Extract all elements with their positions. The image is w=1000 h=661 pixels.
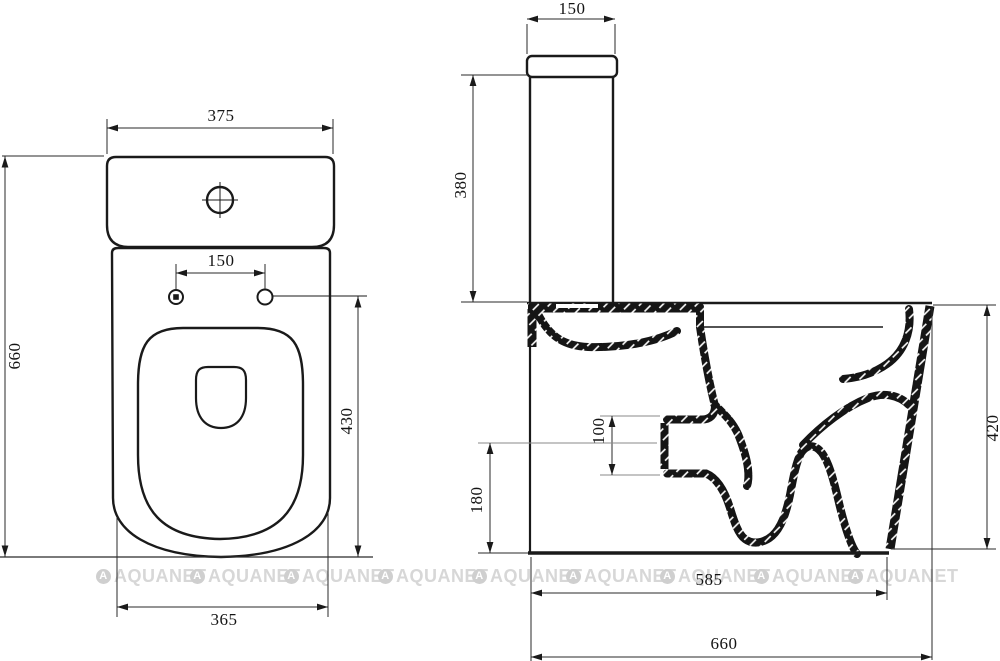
dim-label-side-total-depth: 660 (711, 634, 738, 654)
dim-label-front-base-width: 365 (211, 610, 238, 630)
rim-seat-slot (556, 304, 598, 308)
dim-label-side-outlet-height: 180 (467, 487, 487, 514)
dim-label-side-outlet-size: 100 (589, 418, 609, 445)
dim-label-front-top-width: 375 (208, 106, 235, 126)
front-seat-outline (138, 328, 303, 539)
side-tank-lid (527, 56, 617, 77)
technical-drawing-canvas: AAQUANET AAQUANET AAQUANET AAQUANET AAQU… (0, 0, 1000, 661)
front-view-drawing (107, 157, 367, 557)
drawing-linework (0, 0, 1000, 661)
side-dimension-lines (461, 19, 996, 661)
front-mount-hole-left-plug (173, 294, 179, 300)
dim-label-side-base-depth: 585 (696, 570, 723, 590)
front-drain-shape (196, 367, 246, 428)
dim-label-front-hole-spacing: 150 (208, 251, 235, 271)
bowl-back-drop-band (667, 307, 715, 420)
dim-label-side-tank-height: 380 (451, 172, 471, 199)
trap-weir-band (714, 404, 748, 486)
dim-label-side-bowl-height: 420 (983, 415, 1000, 442)
trap-channel-band (667, 446, 857, 554)
rear-slope-band (890, 306, 930, 549)
trap-upper-back-band (803, 395, 909, 445)
bowl-inner-front-band (538, 314, 677, 347)
bowl-back-inner-band (843, 309, 910, 379)
side-view-drawing (527, 56, 932, 554)
dim-label-front-total-height: 660 (5, 343, 25, 370)
dim-label-side-lid-depth: 150 (559, 0, 586, 19)
dim-label-front-seat-height: 430 (337, 408, 357, 435)
